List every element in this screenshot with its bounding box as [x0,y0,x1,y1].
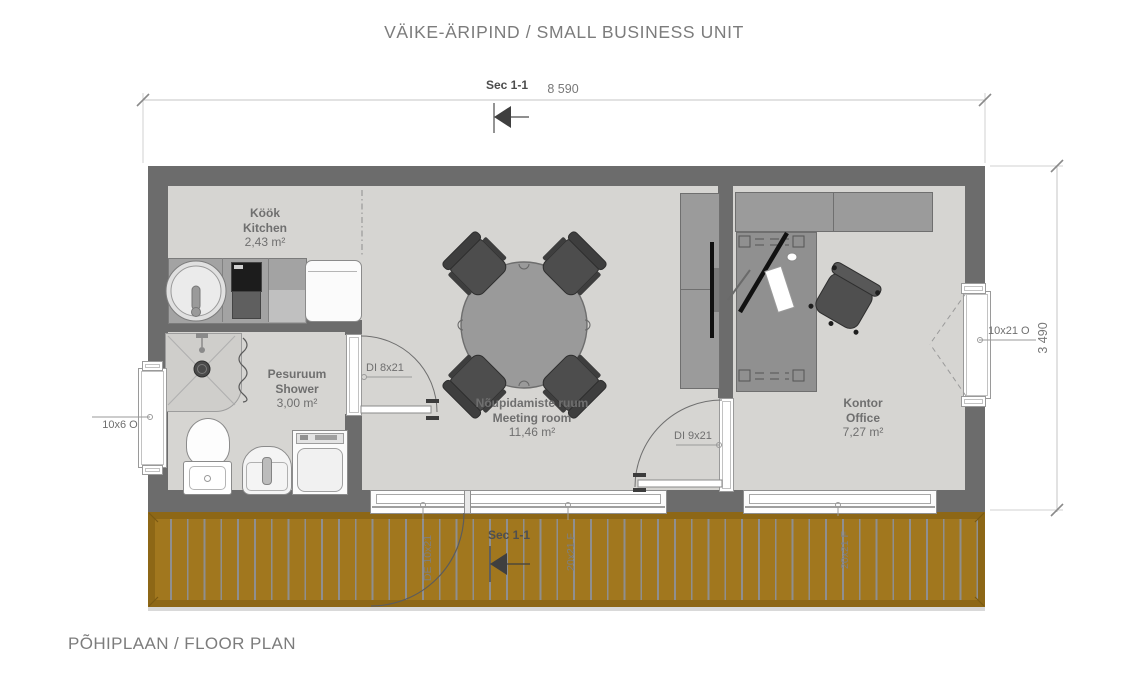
room-name-en: Office [793,411,933,426]
window-left-cap-bottom [142,465,163,475]
section-label-bottom: Sec 1-1 [459,528,559,542]
tv-cabinet-shelf-line [680,289,718,290]
floor-plan-sheet: VÄIKE-ÄRIPIND / SMALL BUSINESS UNIT PÕHI… [0,0,1128,680]
room-label-office: Kontor Office 7,27 m² [793,396,933,440]
office-desk [736,232,817,392]
glazing-sill [749,494,931,504]
room-area: 3,00 m² [227,396,367,411]
glazing-mullion [464,491,471,513]
label-left-window: 10x6 O [92,419,148,431]
tv-cabinet [680,193,720,389]
fridge-door-seam [308,271,357,272]
toilet-flush-button [204,475,211,482]
label-office-door: DI 9x21 [674,430,712,442]
label-meeting-window: 20x21 F [565,512,577,592]
label-shower-door: DI 8x21 [366,362,404,374]
dimension-right [990,160,1063,516]
dimension-top [137,93,991,163]
section-label-top: Sec 1-1 [457,78,557,92]
label-right-door: 10x21 O [988,325,1030,337]
toilet-bowl [186,418,230,466]
room-name-en: Meeting room [452,411,612,426]
door-right-10x21 [963,291,991,399]
basin-faucet [262,457,272,485]
section-marker-top [494,103,529,133]
glazing-glass-line [372,506,665,508]
oven-front [232,291,261,319]
door-right-cap-top [961,283,986,294]
glazing-meeting-south [370,490,667,514]
office-cabinet-right [833,192,933,232]
room-label-kitchen: Köök Kitchen 2,43 m² [195,206,335,250]
label-deck-door: DE 10x21 [422,518,434,598]
wall-bathroom-meeting-upper [345,320,362,335]
room-name-local: Kontor [793,396,933,411]
deck-shadow [148,607,985,611]
room-name-local: Nõupidamiste ruum [452,396,612,411]
room-label-shower: Pesuruum Shower 3,00 m² [227,367,367,411]
counter-divider [222,258,223,322]
room-name-local: Pesuruum [227,367,367,382]
glazing-glass-line [745,506,935,508]
room-name-local: Köök [195,206,335,221]
room-area: 2,43 m² [195,235,335,250]
drawing-title: VÄIKE-ÄRIPIND / SMALL BUSINESS UNIT [0,22,1128,43]
room-area: 11,46 m² [452,425,612,440]
door-right-cap-bottom [961,396,986,407]
room-name-en: Kitchen [195,221,335,236]
window-left-10x6 [138,368,167,468]
washer-dial [300,435,308,440]
drawing-footer: PÕHIPLAAN / FLOOR PLAN [68,634,296,654]
washer-display [315,435,337,440]
glazing-sill [376,494,661,504]
door-frame-di9x21 [719,398,734,492]
room-name-en: Shower [227,382,367,397]
label-office-window: 20x21 F [839,510,851,590]
washer-lid [297,448,343,492]
fridge [305,260,362,322]
wall-meeting-office [718,166,733,398]
room-area: 7,27 m² [793,425,933,440]
office-cabinet-left [735,192,835,232]
dimension-height-label: 3 490 [1036,288,1050,388]
counter-lower-cabinet [269,290,305,322]
room-label-meeting: Nõupidamiste ruum Meeting room 11,46 m² [452,396,612,440]
window-left-cap-top [142,361,163,371]
stove-control [234,265,243,269]
